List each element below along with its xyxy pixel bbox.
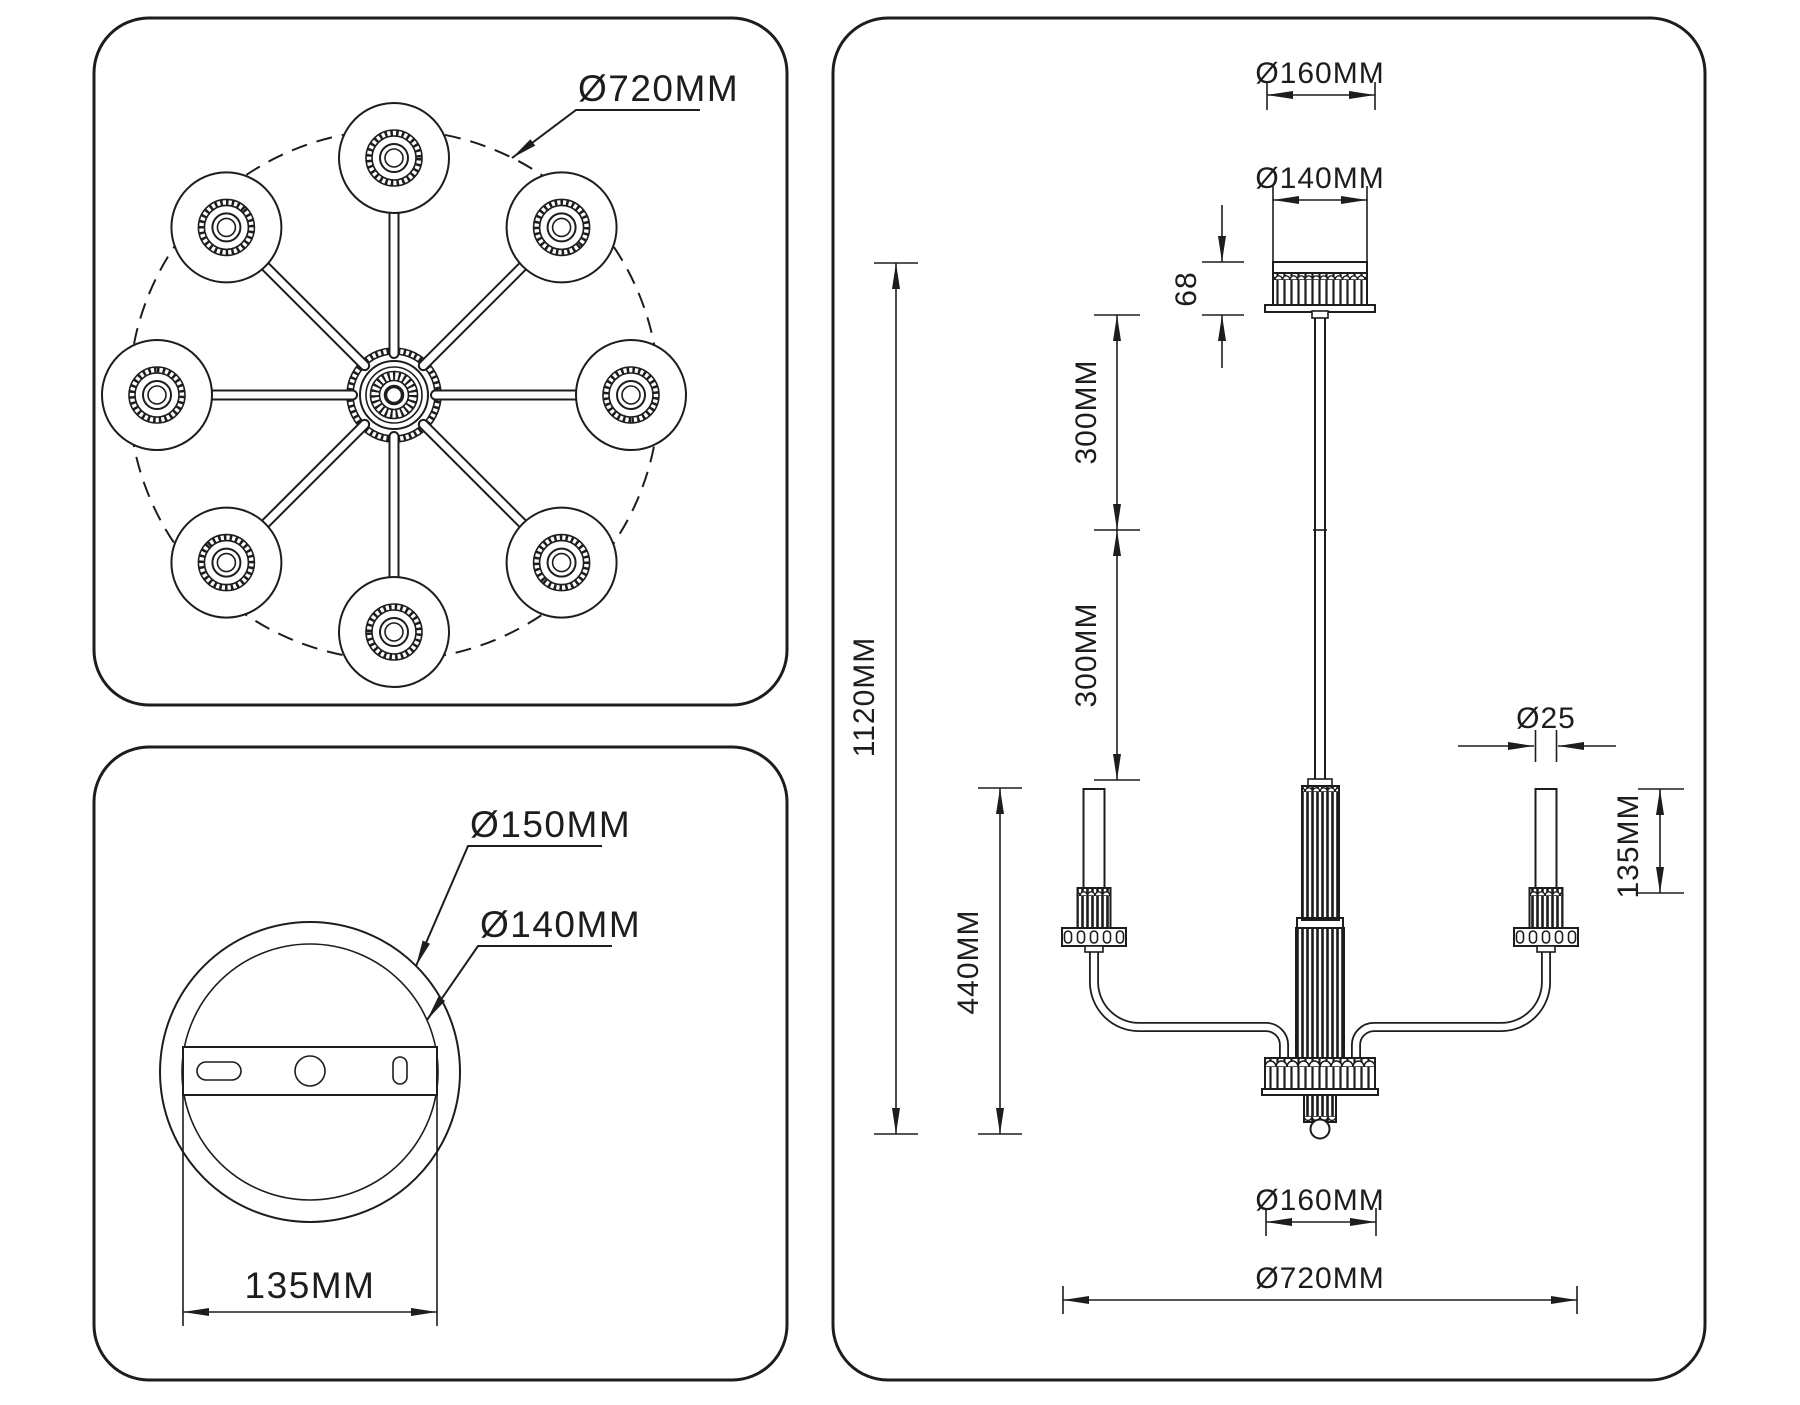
panel-top-view: Ø720MM (94, 18, 787, 705)
spec-sheet: Ø720MM 135MM Ø150MM Ø140MM (0, 0, 1800, 1400)
label-lower-rod: 300MM (1070, 602, 1103, 707)
mounting-bracket (183, 1047, 437, 1095)
finial-ball (1311, 1120, 1330, 1139)
label-hub-diameter: Ø160MM (1255, 1184, 1384, 1217)
label-upper-rod: 300MM (1070, 359, 1103, 464)
label-mount-outer-diameter: Ø150MM (470, 804, 631, 845)
column-upper-fluted (1302, 786, 1339, 920)
label-canopy-flange-diameter: Ø160MM (1255, 57, 1384, 90)
suspension-rod (1315, 317, 1325, 785)
panel-mount-view: 135MM Ø150MM Ø140MM (94, 747, 787, 1380)
label-mount-plate-diameter: Ø140MM (480, 904, 641, 945)
bracket-slot-right (393, 1057, 407, 1084)
column-cap (1308, 779, 1332, 786)
label-bracket-width: 135MM (245, 1265, 376, 1306)
label-overall-width: Ø720MM (1255, 1262, 1384, 1295)
bracket-center-hole (295, 1056, 325, 1086)
central-column (1296, 779, 1344, 1058)
canopy-rim (1273, 262, 1367, 273)
panel-side-view: Ø160MM Ø140MM 68 300MM 300MM (833, 18, 1705, 1380)
column-lower-fluted (1296, 928, 1344, 1058)
label-overall-height: 1120MM (848, 637, 881, 758)
label-candle-diameter: Ø25 (1516, 702, 1576, 735)
bobeche-connector (1085, 946, 1103, 952)
candle-tube (1536, 789, 1557, 888)
panel-border (833, 18, 1705, 1380)
canopy-stem-connector (1312, 311, 1328, 318)
label-canopy-height: 68 (1170, 271, 1203, 306)
bobeche-connector (1537, 946, 1555, 952)
candle-tube (1084, 789, 1105, 888)
label-body-height: 440MM (952, 909, 985, 1014)
label-candle-height: 135MM (1612, 793, 1645, 898)
label-canopy-diameter: Ø140MM (1255, 162, 1384, 195)
technical-drawing: Ø720MM 135MM Ø150MM Ø140MM (0, 0, 1800, 1400)
bracket-slot-left (197, 1062, 241, 1080)
ceiling-canopy (1265, 262, 1375, 318)
label-top-view-diameter: Ø720MM (578, 68, 739, 109)
